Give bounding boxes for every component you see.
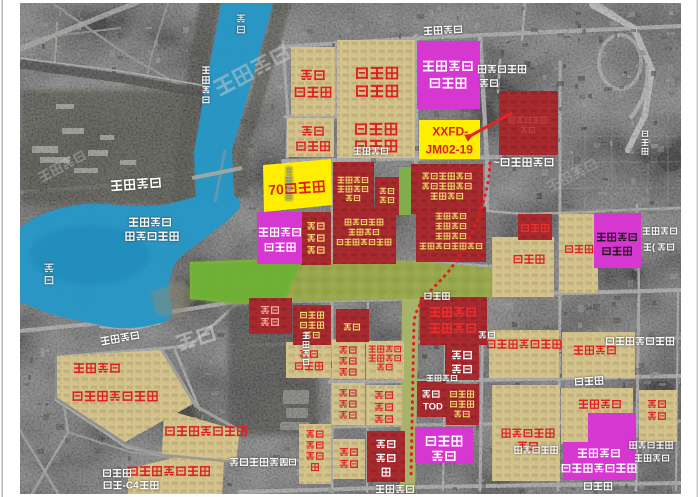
svg-text:70: 70: [268, 181, 285, 198]
svg-text:JM02-19: JM02-19: [426, 142, 474, 156]
svg-text:-C4: -C4: [123, 481, 140, 492]
svg-text:(: (: [652, 242, 655, 252]
svg-text:~: ~: [493, 157, 500, 169]
svg-text:TOD: TOD: [423, 401, 443, 412]
svg-text:XXFD-: XXFD-: [432, 124, 468, 138]
